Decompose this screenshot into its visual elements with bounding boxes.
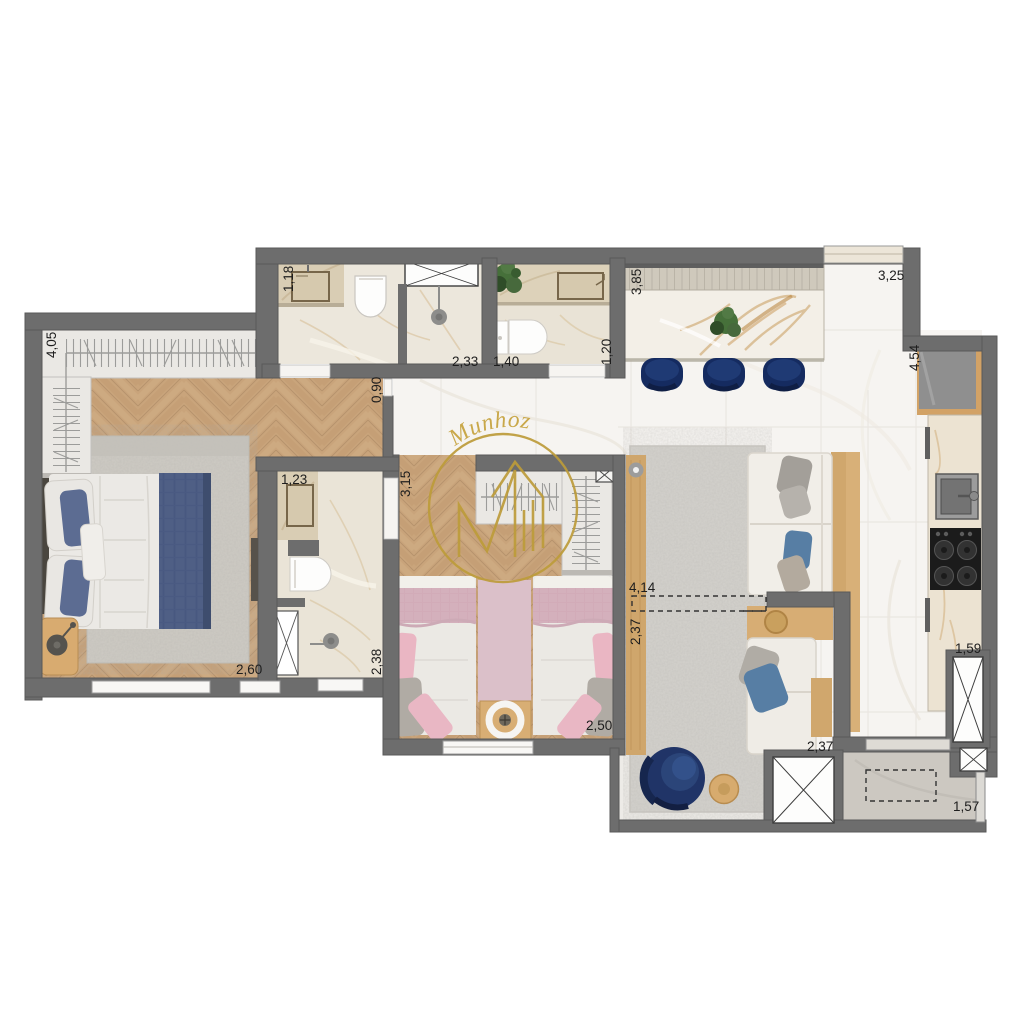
svg-text:4,54: 4,54	[907, 344, 922, 371]
svg-text:2,37: 2,37	[807, 739, 833, 754]
svg-text:1,20: 1,20	[599, 339, 614, 365]
svg-text:4,14: 4,14	[629, 580, 656, 595]
svg-text:2,50: 2,50	[586, 718, 612, 733]
svg-text:1,57: 1,57	[953, 799, 979, 814]
svg-text:2,33: 2,33	[452, 354, 478, 369]
svg-text:3,25: 3,25	[878, 268, 904, 283]
svg-text:1,40: 1,40	[493, 354, 519, 369]
svg-text:1,59: 1,59	[955, 641, 981, 656]
svg-text:1,18: 1,18	[281, 266, 296, 292]
svg-text:1,23: 1,23	[281, 472, 307, 487]
svg-text:2,37: 2,37	[628, 619, 643, 645]
svg-text:3,85: 3,85	[629, 269, 644, 295]
svg-text:3,15: 3,15	[398, 471, 413, 497]
svg-text:2,38: 2,38	[369, 649, 384, 675]
svg-text:2,60: 2,60	[236, 662, 262, 677]
svg-text:4,05: 4,05	[44, 332, 59, 358]
svg-text:0,90: 0,90	[369, 377, 384, 403]
